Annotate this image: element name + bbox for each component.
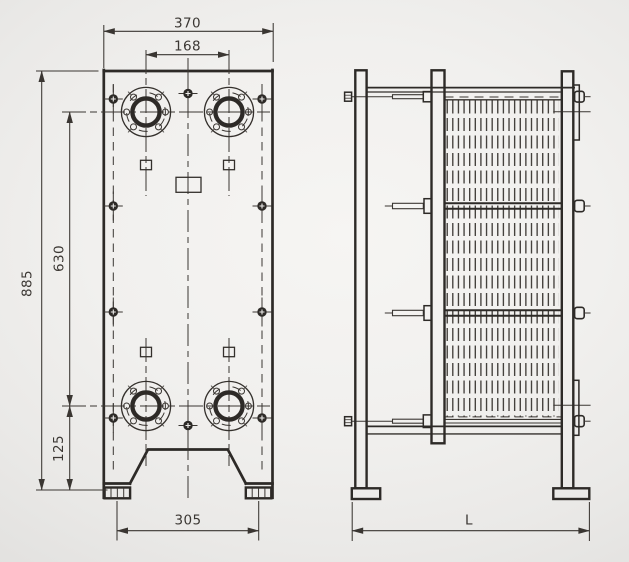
dim-foot-span: 305 <box>175 513 202 529</box>
dim-foot-zone-height: 125 <box>51 435 67 462</box>
left-foot-pad <box>105 488 131 499</box>
center-lines-front <box>62 50 270 502</box>
right-foot-pad <box>246 488 271 499</box>
pressure-plate-column <box>432 70 445 443</box>
drawing-canvas: 370 168 885 630 125 305 <box>0 0 629 562</box>
side-view: L <box>345 70 591 541</box>
front-view: 370 168 885 630 125 305 <box>20 16 274 541</box>
support-column-left <box>352 70 380 499</box>
plate-pack <box>445 100 562 417</box>
dim-overall-width: 370 <box>174 16 201 32</box>
heat-exchanger-drawing: 370 168 885 630 125 305 <box>0 0 629 562</box>
dim-port-spacing-horizontal: 168 <box>174 39 201 55</box>
dim-port-spacing-vertical: 630 <box>52 245 68 272</box>
dim-overall-height: 885 <box>20 270 36 297</box>
dim-frame-length: L <box>465 513 473 529</box>
dimensions-side: L <box>352 502 589 541</box>
